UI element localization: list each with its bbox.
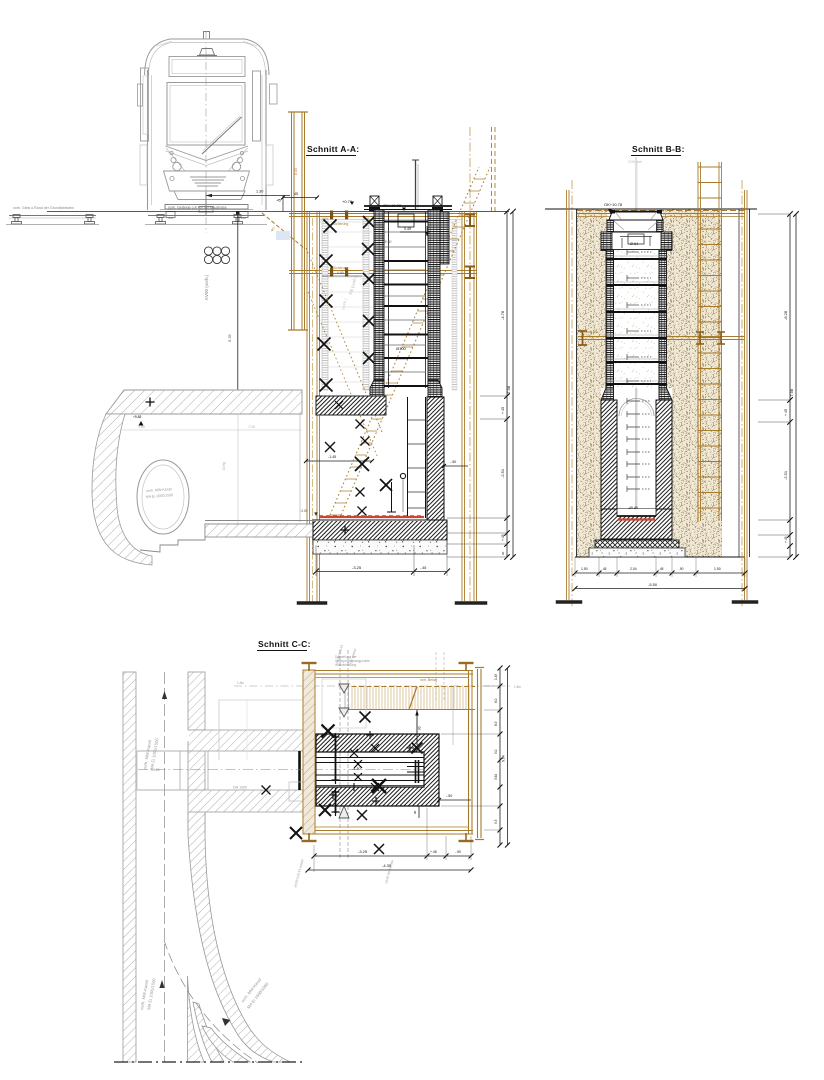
- svg-text:8.00: 8.00: [294, 168, 298, 175]
- svg-text:2.04: 2.04: [630, 567, 637, 571]
- svg-text:.45: .45: [602, 567, 607, 571]
- svg-text:-.50: -.50: [450, 460, 456, 464]
- svg-text:GOK vorh.: GOK vorh.: [628, 160, 643, 164]
- svg-text:7.10: 7.10: [248, 425, 255, 429]
- svg-text:KV00 (vorh.): KV00 (vorh.): [204, 274, 209, 300]
- svg-text:8.5: 8.5: [494, 721, 498, 726]
- svg-text:-3.25: -3.25: [358, 849, 368, 854]
- svg-text:+.45: +.45: [501, 407, 505, 414]
- svg-text:Ø 80: Ø 80: [384, 240, 391, 244]
- svg-text:Schnitt B-B:: Schnitt B-B:: [632, 144, 685, 154]
- svg-text:Schnitt A-A:: Schnitt A-A:: [307, 144, 359, 154]
- svg-text:0.49: 0.49: [404, 227, 411, 231]
- svg-text:-7.98: -7.98: [506, 385, 511, 395]
- svg-text:.90: .90: [679, 567, 684, 571]
- svg-text:0.80: 0.80: [337, 271, 344, 275]
- svg-text:1.30: 1.30: [256, 190, 263, 194]
- svg-text:-1.45: -1.45: [328, 455, 336, 459]
- svg-text:-2.51: -2.51: [783, 470, 788, 480]
- svg-text:3.64: 3.64: [494, 774, 498, 780]
- svg-text:-4.78: -4.78: [500, 310, 505, 320]
- svg-text:1.5m: 1.5m: [514, 685, 521, 689]
- svg-text:-3.00: -3.00: [300, 509, 308, 513]
- svg-text:+.45: +.45: [784, 536, 788, 543]
- svg-text:OK+10.78: OK+10.78: [604, 202, 623, 207]
- svg-text:+5.88: +5.88: [133, 415, 142, 419]
- svg-text:1.50: 1.50: [714, 567, 721, 571]
- svg-text:9.5: 9.5: [494, 819, 498, 824]
- svg-text:-7.98: -7.98: [789, 388, 794, 398]
- svg-text:9.0: 9.0: [494, 749, 498, 754]
- svg-text:Sicherung: Sicherung: [333, 266, 348, 270]
- svg-text:-45: -45: [276, 199, 281, 203]
- svg-text:Schnitt C-C:: Schnitt C-C:: [258, 639, 311, 649]
- svg-text:vorh. Gleis o.Rand der Grundfa: vorh. Gleis o.Rand der Grundfahrbahn: [13, 206, 74, 210]
- svg-text:45: 45: [294, 192, 298, 196]
- svg-text:14.00: 14.00: [151, 768, 160, 772]
- svg-text:-.45: -.45: [420, 566, 426, 570]
- svg-text:+.45: +.45: [501, 534, 505, 541]
- svg-text:1.50: 1.50: [581, 567, 588, 571]
- svg-text:1.45: 1.45: [494, 674, 498, 680]
- svg-text:-.50: -.50: [446, 794, 452, 798]
- svg-text:.45: .45: [659, 567, 664, 571]
- svg-text:90: 90: [413, 810, 417, 814]
- svg-text:90: 90: [418, 726, 422, 730]
- svg-text:+.45: +.45: [430, 850, 437, 854]
- svg-text:1.60: 1.60: [138, 425, 145, 429]
- svg-text:Ø 64: Ø 64: [630, 242, 638, 246]
- svg-text:Sicherung: Sicherung: [333, 222, 348, 226]
- svg-text:-2.51: -2.51: [500, 468, 505, 478]
- svg-text:6.0: 6.0: [494, 698, 498, 703]
- svg-text:9.64: 9.64: [502, 755, 506, 762]
- svg-text:Ø100: Ø100: [396, 346, 407, 351]
- svg-text:-3.25: -3.25: [352, 565, 362, 570]
- svg-text:6.35: 6.35: [227, 333, 232, 342]
- svg-text:-8.28: -8.28: [783, 310, 788, 320]
- svg-text:DN 1000: DN 1000: [233, 786, 247, 790]
- svg-text:20: 20: [501, 551, 505, 555]
- svg-text:1.5m: 1.5m: [237, 681, 244, 685]
- svg-text:O.Hg: O.Hg: [222, 462, 226, 470]
- svg-text:+.45: +.45: [784, 409, 788, 416]
- svg-text:-.90: -.90: [455, 850, 461, 854]
- svg-text:-5.50: -5.50: [648, 582, 658, 587]
- svg-text:-4.30: -4.30: [352, 767, 361, 771]
- svg-text:vorh. Gelände o.K vor der Baus: vorh. Gelände o.K vor der Baustraße: [168, 206, 227, 210]
- svg-text:Gurt A0: Gurt A0: [584, 329, 598, 334]
- svg-text:vorl. Belag: vorl. Belag: [420, 678, 437, 682]
